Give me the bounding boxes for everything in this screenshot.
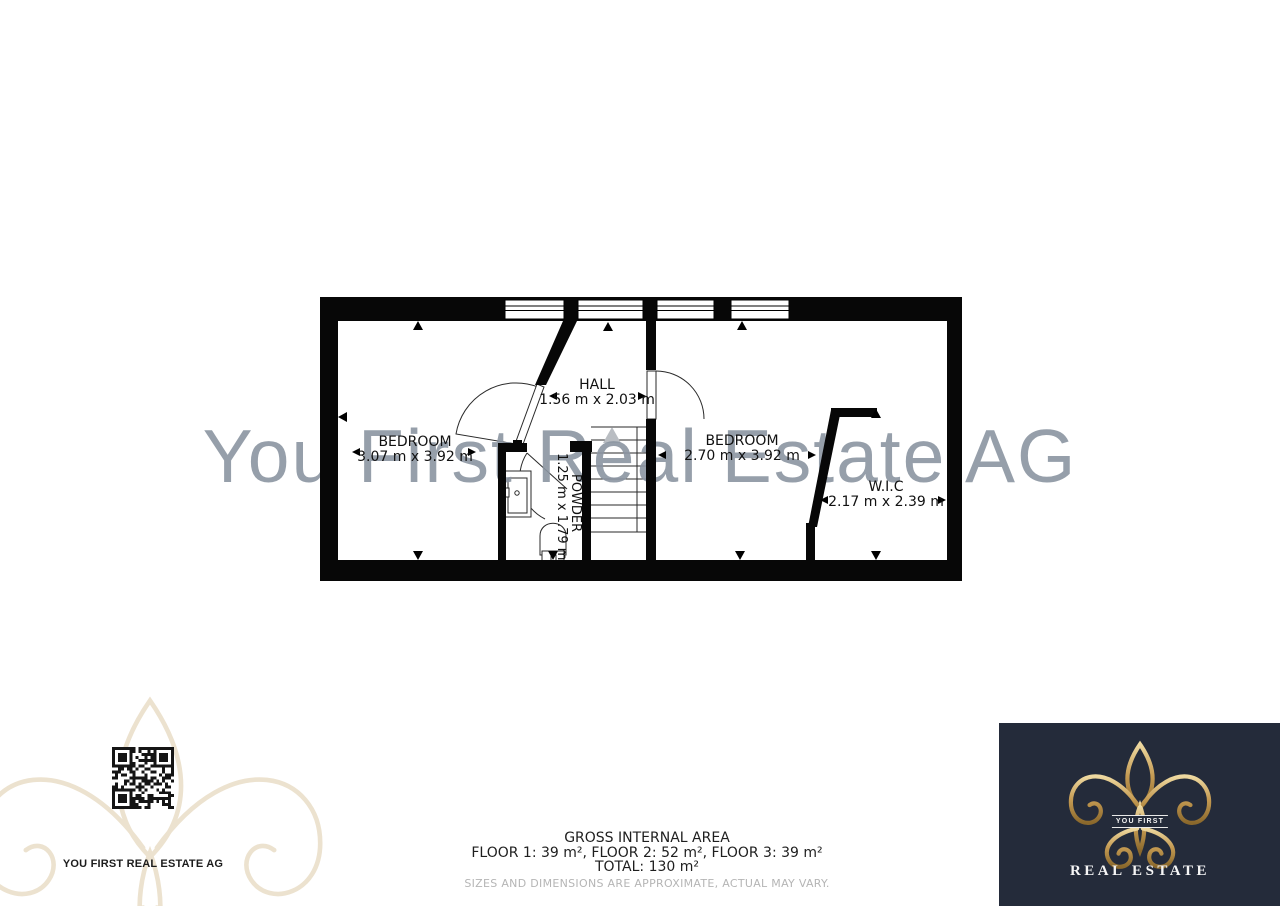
room-dims-hall: 1.56 m x 2.03 m <box>539 392 655 408</box>
company-info: YOU FIRST REAL ESTATE AG Gartenstrasse 2… <box>34 822 251 906</box>
area-floors: FLOOR 1: 39 m², FLOOR 2: 52 m², FLOOR 3:… <box>464 846 829 861</box>
room-label-wic: W.I.C <box>868 479 903 495</box>
fleur-de-lis-logo-icon <box>1065 735 1215 877</box>
area-total: TOTAL: 130 m² <box>464 860 829 875</box>
area-title: GROSS INTERNAL AREA <box>464 831 829 846</box>
room-dims-bedroom-right: 2.70 m x 3.92 m <box>684 448 800 464</box>
room-label-hall: HALL <box>579 377 615 393</box>
logo-bottom-text: REAL ESTATE <box>1070 863 1210 880</box>
room-label-powder: POWDER <box>568 474 583 532</box>
room-label-bedroom-right: BEDROOM <box>705 433 778 449</box>
room-dims-bedroom-left: 3.07 m x 3.92 m <box>357 449 473 465</box>
door-hall-bedroom <box>647 371 704 419</box>
room-dims-powder: 1.25 m x 1.79 m <box>554 453 569 560</box>
logo-top-text: YOU FIRST <box>1112 815 1168 828</box>
area-summary: GROSS INTERNAL AREA FLOOR 1: 39 m², FLOO… <box>464 831 829 891</box>
qr-code <box>112 747 174 809</box>
room-label-bedroom-left: BEDROOM <box>378 434 451 450</box>
company-name: YOU FIRST REAL ESTATE AG <box>34 858 251 870</box>
floorplan-sheet: You First Real Estate AG <box>0 0 1280 906</box>
room-dims-wic: 2.17 m x 2.39 m <box>828 494 944 510</box>
area-disclaimer: SIZES AND DIMENSIONS ARE APPROXIMATE, AC… <box>464 877 829 891</box>
brand-panel: YOU FIRST REAL ESTATE <box>999 723 1280 906</box>
